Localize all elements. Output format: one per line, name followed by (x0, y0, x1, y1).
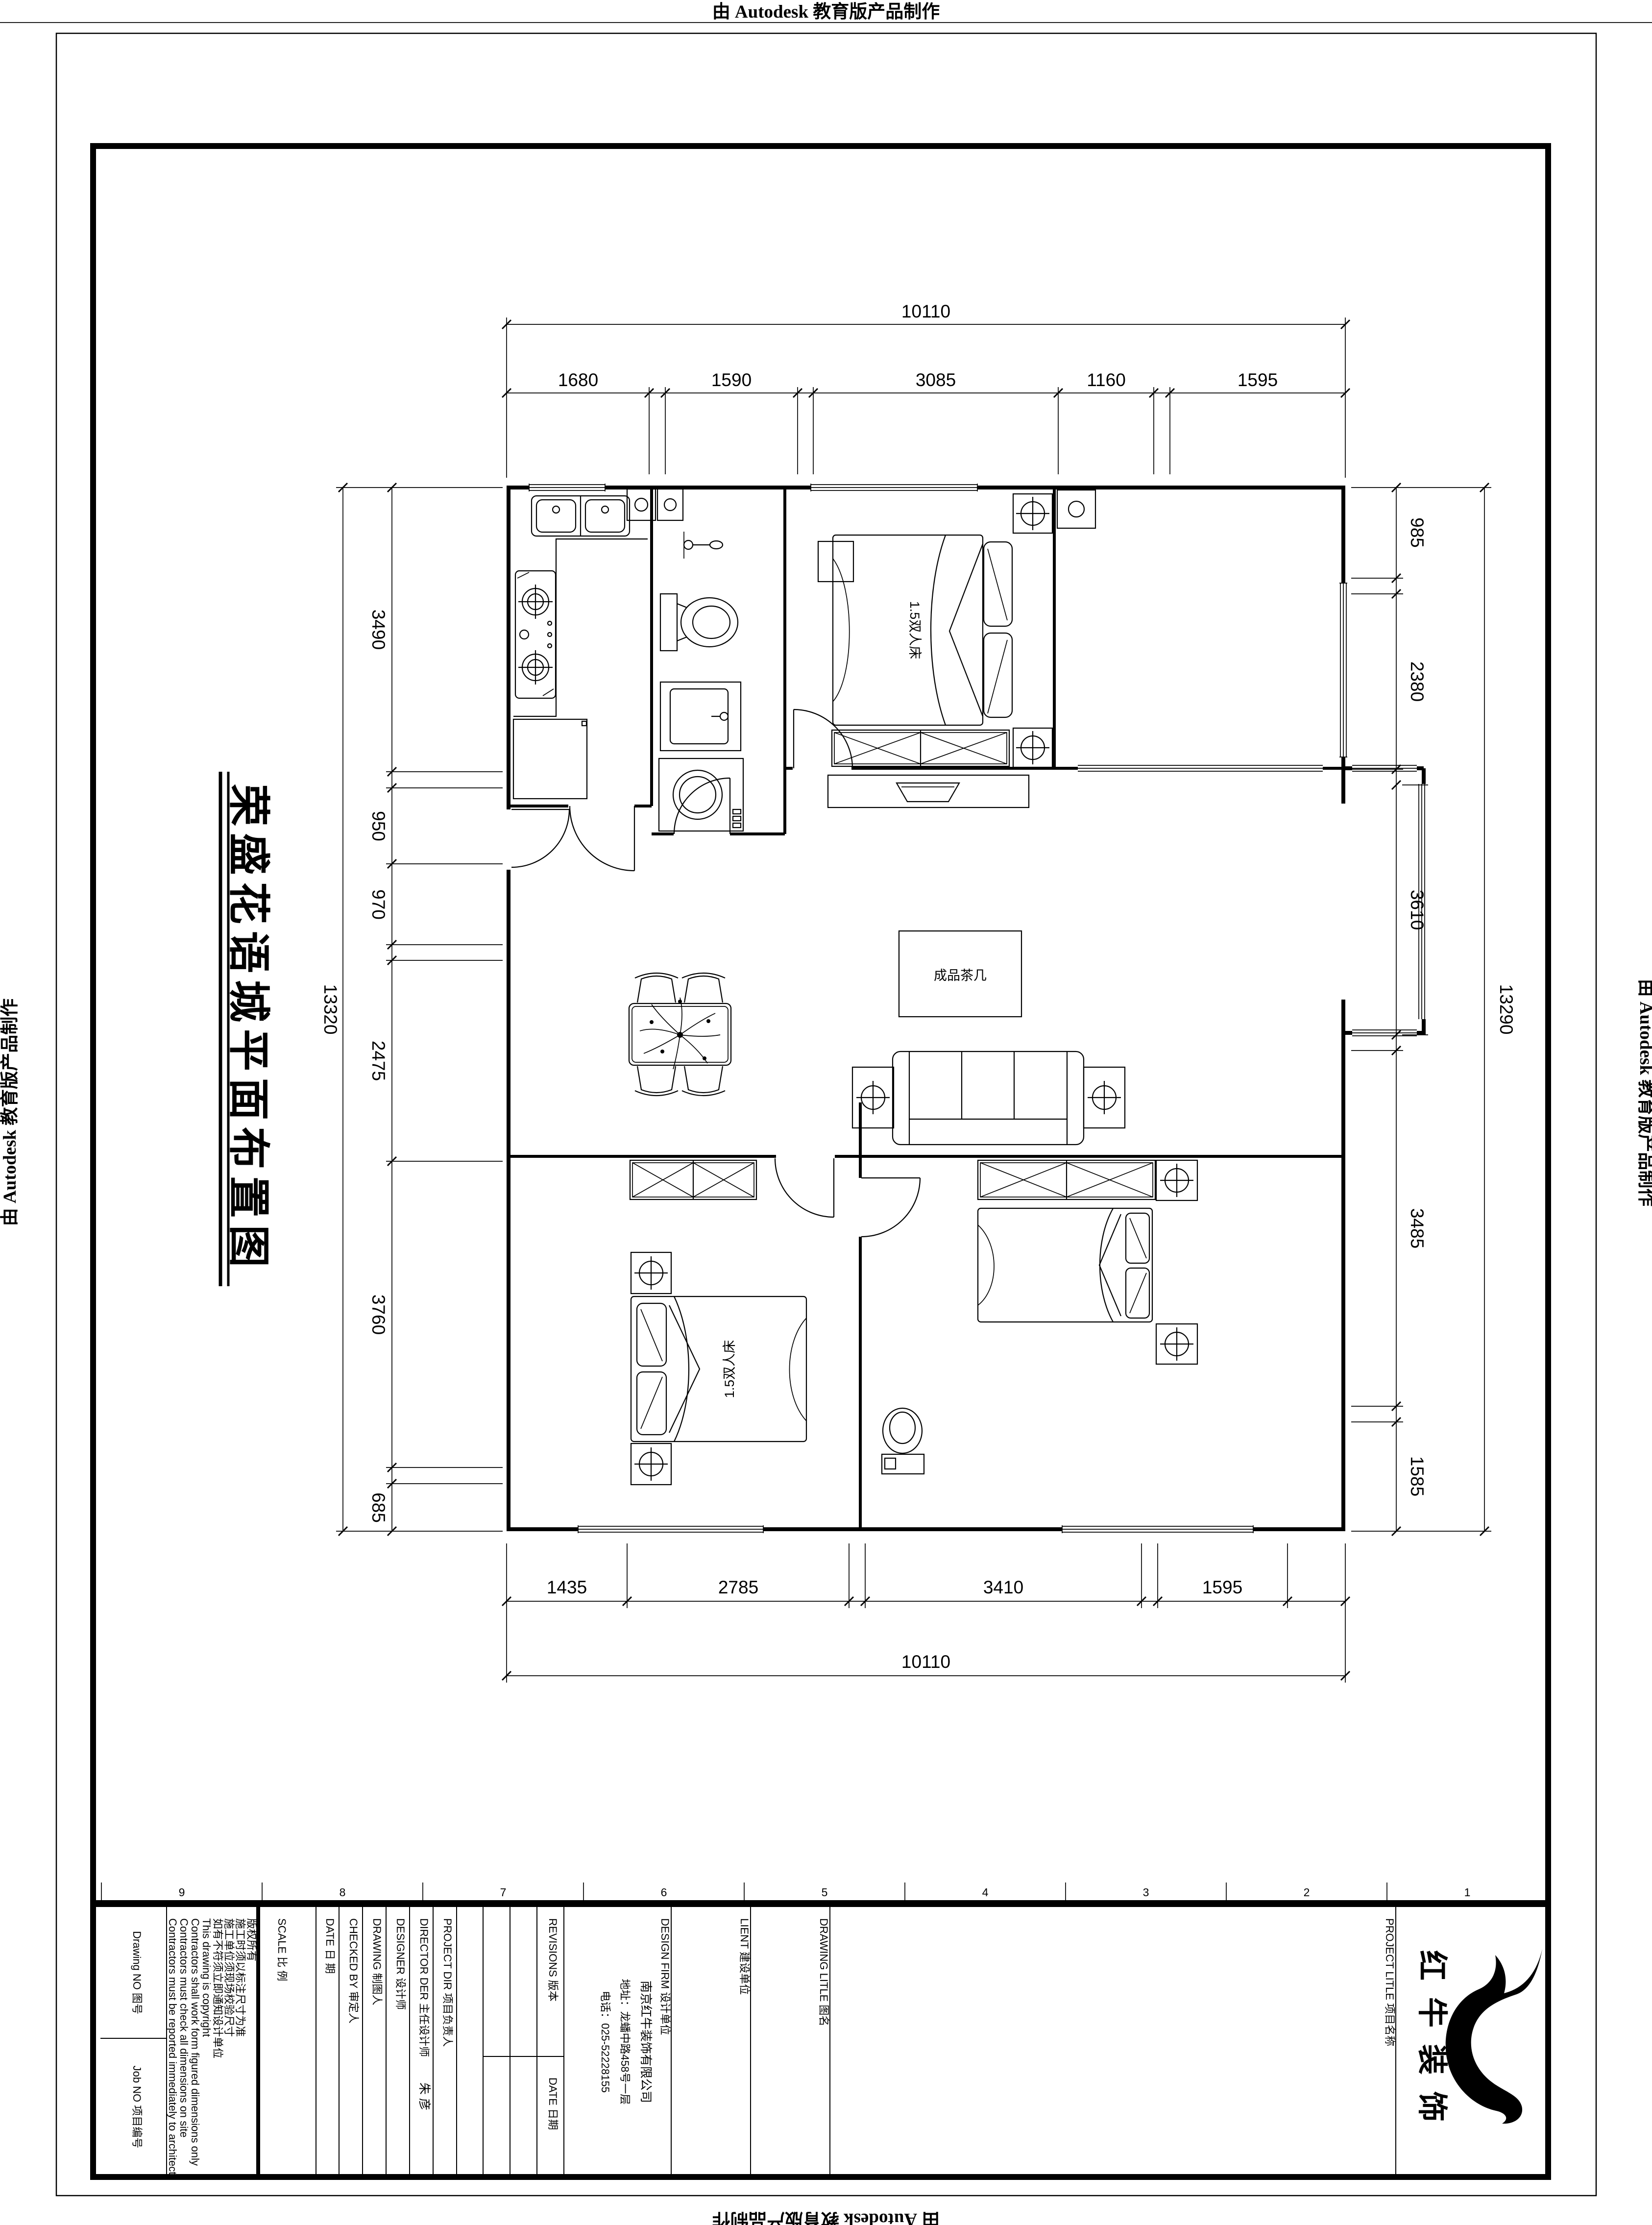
tb-firm-label: DESIGN FIRM 设计单位 (659, 1918, 671, 2035)
tb-drawing-by: DRAWING 制图人 (371, 1918, 383, 2005)
zone-8: 8 (340, 1886, 346, 1899)
dim-bot-s1: 2785 (718, 1577, 758, 1597)
zone-7: 7 (500, 1886, 507, 1899)
dim-left-s2: 970 (368, 889, 389, 920)
tb-rev-date: DATE 日期 (547, 2078, 559, 2130)
walls (507, 488, 1424, 1531)
dim-top-s0: 1680 (558, 370, 598, 390)
bull-logo-icon (1446, 1949, 1542, 2124)
dim-left: 3490 950 970 2475 3760 685 13320 (320, 483, 503, 1536)
banner-right: 由 Autodesk 教育版产品制作 (1636, 979, 1652, 1207)
zone-4: 4 (982, 1886, 989, 1899)
dim-left-s1: 950 (368, 811, 389, 841)
tb-disclaimer-6: Contractors must check all dimensions on… (178, 1918, 190, 2138)
tb-job-no: Job NO 项目编号 (131, 2066, 143, 2149)
zone-2: 2 (1304, 1886, 1310, 1899)
tb-disclaimer-3: 如有不符须立即通知设计单位 (212, 1918, 224, 2058)
page-border (56, 33, 1596, 2196)
zone-9: 9 (179, 1886, 185, 1899)
entry-door (511, 809, 569, 867)
dim-right: 985 2380 3610 3485 1585 13290 (1351, 483, 1516, 1536)
tb-project-title-label: PROJECT LITLE 项目名称 (1384, 1918, 1396, 2046)
bedroom2-nightstand-top (631, 1252, 671, 1294)
dim-right-s3: 3485 (1407, 1208, 1427, 1248)
logo-text: 红牛装饰 (1415, 1950, 1449, 2138)
dim-top-s2: 3085 (916, 370, 956, 390)
bedroom3-bed (978, 1208, 1152, 1322)
company-logo: 红牛装饰 (1415, 1949, 1542, 2138)
bedroom1-bed-label: 1.5双人床 (907, 601, 922, 660)
bedroom2-wardrobe (630, 1160, 756, 1199)
banner-bottom: 由 Autodesk 教育版产品制作 (712, 2209, 940, 2225)
bath-vanity (660, 682, 741, 751)
dim-left-overall: 13320 (320, 984, 340, 1035)
tb-checked-by: CHECKED BY 审定人 (347, 1918, 360, 2024)
bedroom2-bed-label: 1.5双人床 (722, 1340, 737, 1398)
zone-ruler: 9 8 7 6 5 4 3 2 1 (101, 1883, 1548, 1900)
side-table-left (852, 1067, 894, 1128)
tb-firm-phone: 电话：025-52228155 (599, 1991, 611, 2093)
sofa (893, 1051, 1084, 1145)
tb-disclaimer-4: This drawing is copyright (200, 1918, 213, 2037)
dim-right-s1: 2380 (1407, 661, 1427, 702)
toilet (660, 594, 738, 651)
sheet-title-text: 荣盛花语城平面布置图 (225, 784, 272, 1274)
bedroom3 (882, 1160, 1197, 1474)
zone-3: 3 (1143, 1886, 1149, 1899)
dim-bot-s2: 3410 (983, 1577, 1023, 1597)
dining-area (629, 973, 731, 1096)
tb-firm-address: 地址：龙蟠中路458号一层 (619, 1979, 631, 2105)
tb-disclaimer-0: 版权所有 (245, 1918, 258, 1961)
dim-left-s3: 2475 (368, 1041, 389, 1081)
kitchen-cabinet (513, 719, 587, 799)
dim-right-s2: 3610 (1407, 890, 1427, 930)
living-room: 成品茶几 (828, 775, 1125, 1145)
bedroom1-door (794, 709, 852, 768)
coffee-table-label: 成品茶几 (934, 968, 987, 983)
title-block: Drawing NO 图号 Job NO 项目编号 版权所有 施工时须以标注尺寸… (100, 1907, 1542, 2180)
tb-firm-name: 南京红牛装饰有限公司 (639, 1980, 653, 2103)
dim-bottom: 1435 2785 3410 1595 10110 (502, 1543, 1350, 1683)
kitchen-sink-left (536, 500, 576, 532)
tb-project-dir: PROJECT DIR 项目负责人 (441, 1918, 454, 2047)
bedroom3-toilet (882, 1408, 924, 1474)
bath-faucet (684, 532, 723, 559)
bedroom3-wardrobe (978, 1160, 1155, 1199)
bedroom1-nightstand-bottom (1013, 728, 1052, 767)
tb-revisions: REVISIONS 版本 (547, 1918, 559, 2002)
bedroom1-wardrobe (832, 730, 1009, 766)
table-plant (640, 998, 720, 1069)
kitchen (513, 496, 648, 799)
tb-date: DATE 日 期 (324, 1918, 336, 1974)
dim-left-s0: 3490 (368, 610, 389, 650)
bedroom3-nightstand-top (1156, 1160, 1197, 1200)
zone-1: 1 (1464, 1886, 1471, 1899)
tb-director: DIRECTOR DER 主任设计师 (418, 1918, 430, 2057)
zone-5: 5 (822, 1886, 828, 1899)
cad-sheet: 由 Autodesk 教育版产品制作 由 Autodesk 教育版产品制作 由 … (0, 0, 1652, 2225)
dim-bot-s3: 1595 (1202, 1577, 1242, 1597)
bedroom2-bed (631, 1296, 806, 1442)
dim-top: 10110 1680 1590 3085 1160 1595 (502, 301, 1350, 478)
dim-bot-overall: 10110 (901, 1652, 950, 1672)
dim-left-s5: 685 (368, 1492, 389, 1523)
banner-left: 由 Autodesk 教育版产品制作 (0, 999, 20, 1226)
tb-director-name: 朱 彦 (417, 2082, 431, 2110)
dim-left-s4: 3760 (368, 1295, 389, 1335)
kitchen-stove (515, 571, 556, 698)
tb-scale: SCALE 比 例 (276, 1918, 288, 1981)
dim-right-s4: 1585 (1407, 1456, 1427, 1496)
cad-drawing-svg: 由 Autodesk 教育版产品制作 由 Autodesk 教育版产品制作 由 … (0, 0, 1652, 2225)
bedroom3-door (861, 1178, 920, 1237)
bedroom1: 1.5双人床 (818, 494, 1052, 767)
banner-top: 由 Autodesk 教育版产品制作 (712, 1, 940, 22)
bedroom1-bed (833, 535, 1012, 725)
bath-door (674, 778, 730, 834)
tb-disclaimer-5: Contractors shall work form figured dime… (189, 1918, 201, 2166)
dim-right-s0: 985 (1407, 517, 1427, 548)
dim-top-s3: 1160 (1087, 370, 1126, 390)
bedroom2-door (775, 1158, 834, 1217)
zone-6: 6 (661, 1886, 667, 1899)
bedroom2: 1.5双人床 (630, 1160, 806, 1485)
dim-top-overall: 10110 (901, 301, 950, 321)
tb-drawing-no: Drawing NO 图号 (131, 1931, 143, 2014)
bedroom1-stool (818, 541, 853, 582)
tb-designer: DESIGNER 设计师 (394, 1918, 407, 2010)
sheet-title: 荣盛花语城平面布置图 (220, 772, 272, 1286)
tb-disclaimer: 版权所有 施工时须以标注尺寸为准 施工单位须现场校验尺寸 如有不符须立即通知设计… (167, 1918, 258, 2180)
bedroom3-nightstand-bottom (1156, 1324, 1197, 1364)
tb-disclaimer-1: 施工时须以标注尺寸为准 (234, 1918, 246, 2037)
windows (529, 484, 1425, 1533)
dim-right-overall: 13290 (1496, 984, 1516, 1035)
dim-top-s1: 1590 (711, 370, 752, 390)
tb-disclaimer-2: 施工单位须现场校验尺寸 (223, 1918, 235, 2037)
kitchen-door (570, 806, 634, 871)
tv-cabinet (828, 775, 1029, 807)
dim-bot-s0: 1435 (547, 1577, 587, 1597)
tb-disclaimer-7: Contractors must be reported immediately… (167, 1918, 179, 2180)
side-table-right (1084, 1067, 1125, 1128)
kitchen-sink-right (585, 500, 625, 532)
bedroom1-nightstand-top (1013, 494, 1052, 533)
bedroom2-nightstand-bottom (631, 1443, 671, 1485)
washing-machine (659, 758, 743, 831)
tb-client: LIENT 建设单位 (738, 1918, 751, 1995)
dim-top-s4: 1595 (1238, 370, 1278, 390)
tb-drawing-title-label: DRAWING LITLE 图名 (818, 1918, 830, 2026)
